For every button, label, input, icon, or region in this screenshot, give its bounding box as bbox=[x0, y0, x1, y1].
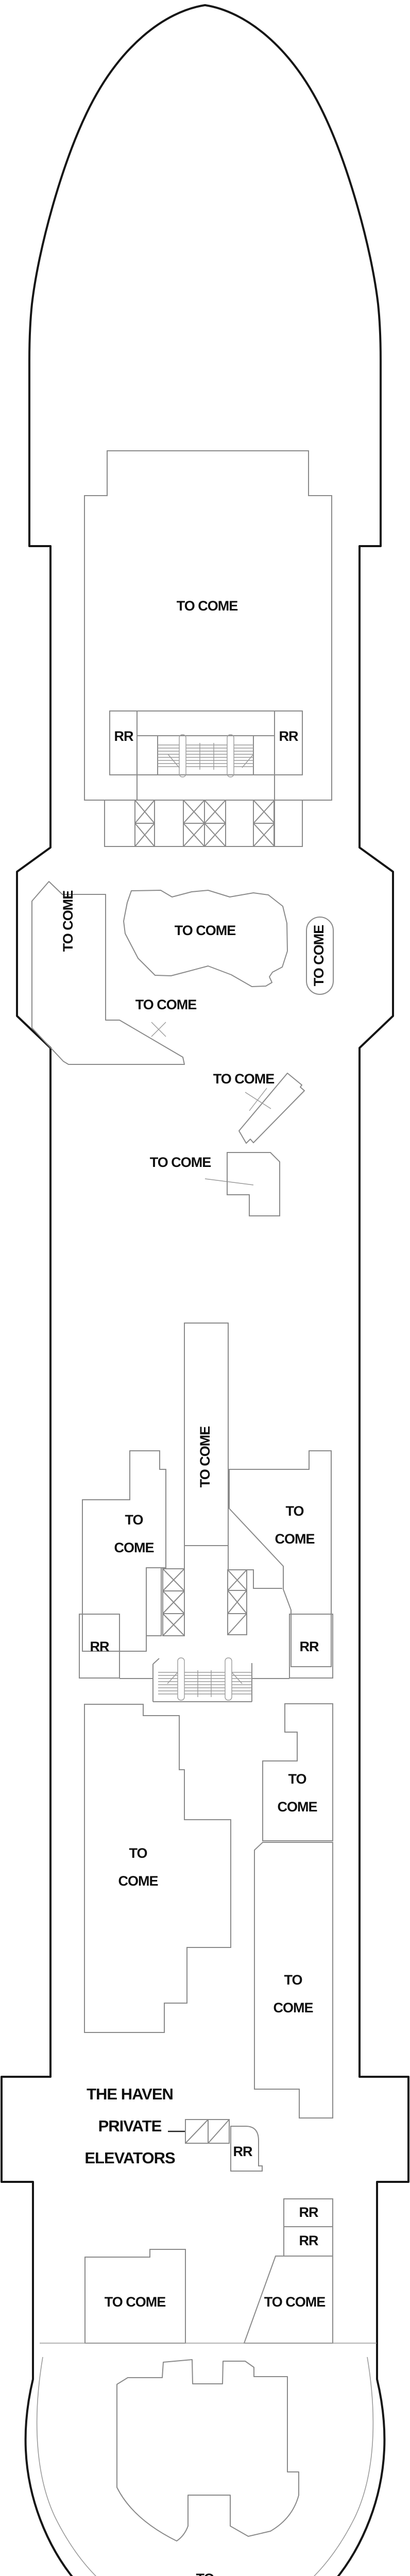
label-haven-line2: PRIVATE bbox=[98, 2117, 162, 2135]
label-port-midship-line1: TO bbox=[125, 1512, 143, 1528]
label-rr-midship-port: RR bbox=[90, 1639, 109, 1654]
label-starboard-aft-line1: TO bbox=[284, 1972, 302, 1988]
label-forward-lounge: TO COME bbox=[177, 598, 238, 614]
label-central-corridor: TO COME bbox=[197, 1427, 213, 1488]
label-starboard-aft-upper-line1: TO bbox=[288, 1771, 306, 1787]
deck-plan-svg: TO COME RR RR TO COME TO COME TO C bbox=[0, 0, 410, 2576]
label-forward-freeform-area: TO COME bbox=[175, 923, 236, 938]
hull-outline bbox=[2, 5, 408, 2576]
label-rr-midship-starboard: RR bbox=[300, 1639, 319, 1654]
label-stern-deck-line1: TO bbox=[196, 2571, 214, 2576]
label-port-aft-line1: TO bbox=[129, 1845, 147, 1861]
label-starboard-stern-room: TO COME bbox=[264, 2294, 326, 2310]
label-starboard-midship-line2: COME bbox=[275, 1531, 315, 1547]
label-port-midforward-area: TO COME bbox=[135, 997, 197, 1012]
label-forward-escalator-area: TO COME bbox=[213, 1071, 275, 1087]
label-port-stern-room: TO COME bbox=[105, 2294, 166, 2310]
label-port-midship-line2: COME bbox=[114, 1540, 154, 1555]
label-rr-forward-port: RR bbox=[114, 728, 133, 744]
deck-plan-page: TO COME RR RR TO COME TO COME TO C bbox=[0, 0, 410, 2576]
label-rr-aft-upper: RR bbox=[299, 2205, 318, 2220]
label-rr-forward-starboard: RR bbox=[279, 728, 298, 744]
label-port-aft-line2: COME bbox=[118, 1873, 158, 1889]
elevator-shafts-middle bbox=[183, 800, 226, 846]
label-starboard-aft-upper-line2: COME bbox=[278, 1799, 317, 1815]
label-starboard-aft-line2: COME bbox=[274, 2000, 313, 2015]
label-rr-aft-lower: RR bbox=[299, 2233, 318, 2248]
label-rr-haven: RR bbox=[233, 2144, 252, 2159]
label-haven-line3: ELEVATORS bbox=[84, 2149, 175, 2167]
label-starboard-midship-line1: TO bbox=[285, 1503, 303, 1519]
label-haven-line1: THE HAVEN bbox=[87, 2085, 173, 2103]
label-port-forward-room: TO COME bbox=[60, 891, 76, 952]
label-starboard-forward-capsule: TO COME bbox=[311, 925, 327, 987]
label-midforward-room: TO COME bbox=[150, 1155, 211, 1170]
